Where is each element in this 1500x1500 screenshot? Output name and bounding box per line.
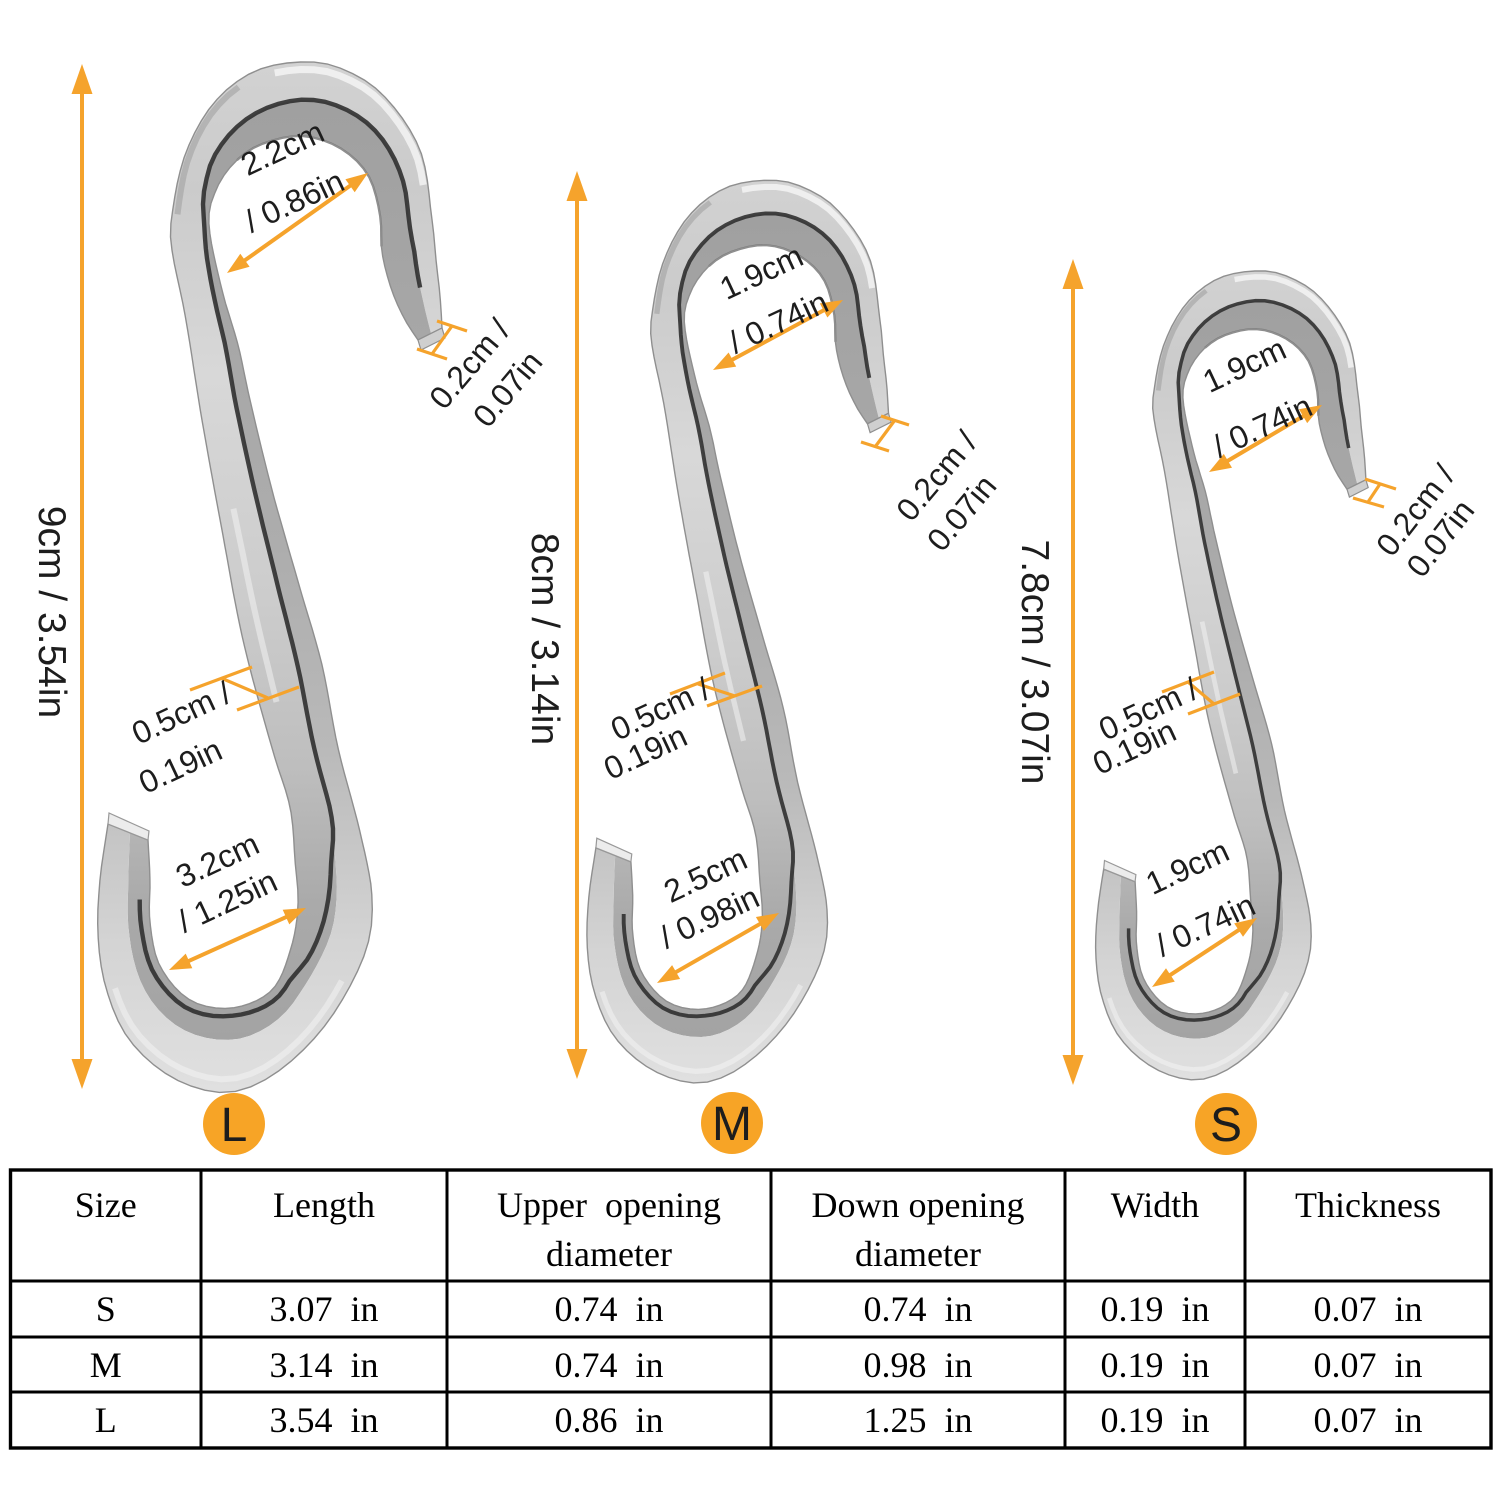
svg-text:L: L <box>221 1099 248 1152</box>
svg-text:3.07 in: 3.07 in <box>269 1289 378 1329</box>
svg-text:3.14 in: 3.14 in <box>269 1345 378 1385</box>
svg-text:9cm / 3.54in: 9cm / 3.54in <box>30 506 73 718</box>
svg-text:0.07 in: 0.07 in <box>1313 1289 1422 1329</box>
svg-text:diameter: diameter <box>546 1234 672 1274</box>
svg-text:0.86 in: 0.86 in <box>554 1400 663 1440</box>
svg-text:0.19 in: 0.19 in <box>1100 1400 1209 1440</box>
svg-text:0.98 in: 0.98 in <box>863 1345 972 1385</box>
svg-text:Width: Width <box>1111 1185 1200 1225</box>
svg-text:0.19 in: 0.19 in <box>1100 1345 1209 1385</box>
svg-text:1.25 in: 1.25 in <box>863 1400 972 1440</box>
svg-text:M: M <box>712 1098 752 1151</box>
svg-text:M: M <box>90 1345 122 1385</box>
svg-text:0.07 in: 0.07 in <box>1313 1345 1422 1385</box>
svg-text:0.74 in: 0.74 in <box>863 1289 972 1329</box>
svg-text:Size: Size <box>75 1185 137 1225</box>
svg-text:Down opening: Down opening <box>812 1185 1025 1225</box>
svg-text:S: S <box>96 1289 116 1329</box>
svg-text:0.74 in: 0.74 in <box>554 1289 663 1329</box>
svg-text:Upper opening: Upper opening <box>497 1185 721 1225</box>
svg-text:0.19 in: 0.19 in <box>1100 1289 1209 1329</box>
svg-text:Length: Length <box>273 1185 375 1225</box>
svg-text:7.8cm / 3.07in: 7.8cm / 3.07in <box>1013 540 1056 785</box>
svg-text:Thickness: Thickness <box>1295 1185 1441 1225</box>
svg-text:0.07 in: 0.07 in <box>1313 1400 1422 1440</box>
svg-text:3.54 in: 3.54 in <box>269 1400 378 1440</box>
svg-text:0.74 in: 0.74 in <box>554 1345 663 1385</box>
svg-text:8cm / 3.14in: 8cm / 3.14in <box>523 533 566 745</box>
svg-text:S: S <box>1210 1099 1242 1152</box>
svg-text:diameter: diameter <box>855 1234 981 1274</box>
svg-text:L: L <box>95 1400 117 1440</box>
